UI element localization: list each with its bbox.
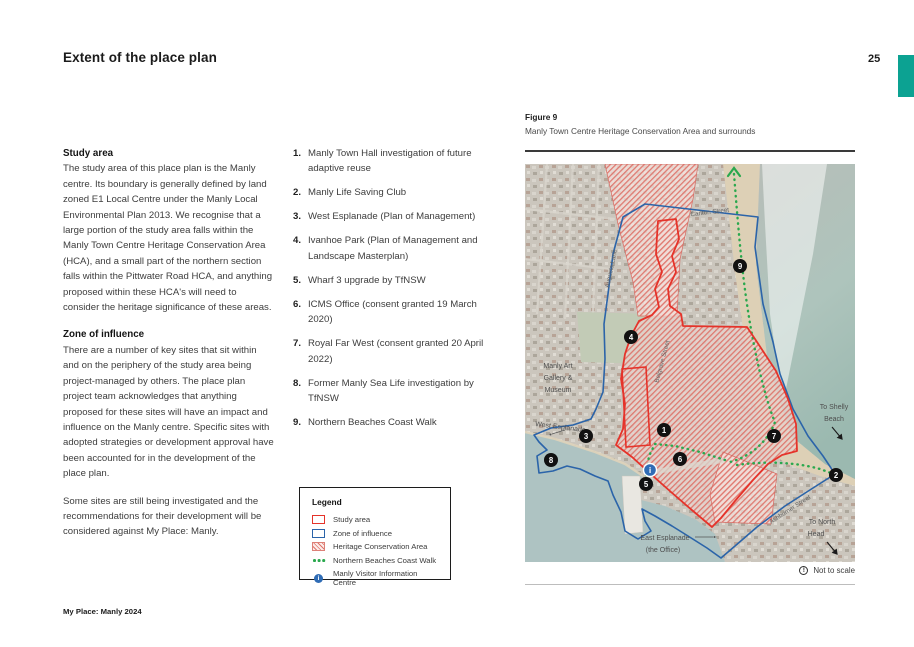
map-figure: Carlton Street Augusta Lane Belgrave Str… bbox=[525, 164, 855, 562]
legend-item-info-centre: i Manly Visitor Information Centre bbox=[312, 569, 442, 587]
zone-of-influence-swatch bbox=[312, 529, 325, 538]
svg-text:3: 3 bbox=[584, 432, 589, 441]
svg-text:i: i bbox=[649, 465, 651, 475]
study-area-swatch bbox=[312, 515, 325, 524]
marker-7: 7 bbox=[767, 429, 781, 443]
key-sites-list: 1.Manly Town Hall investigation of futur… bbox=[293, 146, 493, 439]
marker-8: 8 bbox=[544, 453, 558, 467]
caption-rule bbox=[525, 150, 855, 152]
svg-text:East Esplanade: East Esplanade bbox=[640, 535, 689, 542]
svg-text:(the Office): (the Office) bbox=[646, 547, 681, 554]
svg-text:Museum: Museum bbox=[545, 387, 572, 394]
study-area-body: The study area of this place plan is the… bbox=[63, 161, 274, 315]
list-item: 5.Wharf 3 upgrade by TfNSW bbox=[293, 273, 493, 288]
legend-item-zone-of-influence: Zone of influence bbox=[312, 529, 442, 538]
list-item: 4.Ivanhoe Park (Plan of Management and L… bbox=[293, 233, 493, 264]
manly-map: Carlton Street Augusta Lane Belgrave Str… bbox=[525, 164, 855, 562]
list-item: 2.Manly Life Saving Club bbox=[293, 185, 493, 200]
legend-item-study-area: Study area bbox=[312, 515, 442, 524]
zone-of-influence-para2: Some sites are still being investigated … bbox=[63, 494, 274, 540]
marker-6: 6 bbox=[673, 452, 687, 466]
list-item: 6.ICMS Office (consent granted 19 March … bbox=[293, 297, 493, 328]
visitor-info-icon: i bbox=[644, 464, 657, 477]
marker-3: 3 bbox=[579, 429, 593, 443]
svg-text:2: 2 bbox=[834, 471, 839, 480]
marker-2: 2 bbox=[829, 468, 843, 482]
alert-icon: ! bbox=[799, 566, 808, 575]
figure-label: Figure 9 bbox=[525, 112, 855, 122]
info-icon: i bbox=[312, 574, 325, 583]
coast-walk-dots-icon bbox=[312, 556, 325, 565]
marker-9: 9 bbox=[733, 259, 747, 273]
label-art-gallery: Manly Art Gallery & Museum bbox=[543, 363, 572, 394]
svg-text:4: 4 bbox=[629, 333, 634, 342]
list-item: 8.Former Manly Sea Life investigation by… bbox=[293, 376, 493, 407]
svg-text:1: 1 bbox=[662, 426, 667, 435]
zone-of-influence-para1: There are a number of key sites that sit… bbox=[63, 343, 274, 482]
svg-text:Head: Head bbox=[808, 531, 825, 538]
heritage-hatch-swatch bbox=[312, 542, 325, 551]
list-item: 3.West Esplanade (Plan of Management) bbox=[293, 209, 493, 224]
zone-of-influence-heading: Zone of influence bbox=[63, 327, 274, 342]
left-column: Study area The study area of this place … bbox=[63, 146, 274, 552]
svg-text:Manly Art: Manly Art bbox=[543, 363, 572, 370]
scale-note: ! Not to scale bbox=[525, 566, 855, 575]
footer-text: My Place: Manly 2024 bbox=[63, 607, 142, 616]
marker-5: 5 bbox=[639, 477, 653, 491]
study-area-heading: Study area bbox=[63, 146, 274, 161]
list-item: 1.Manly Town Hall investigation of futur… bbox=[293, 146, 493, 177]
svg-text:Beach: Beach bbox=[824, 416, 844, 423]
list-item: 9.Northern Beaches Coast Walk bbox=[293, 415, 493, 430]
page-title: Extent of the place plan bbox=[63, 50, 217, 65]
legend-item-coast-walk: Northern Beaches Coast Walk bbox=[312, 556, 442, 565]
list-item: 7.Royal Far West (consent granted 20 Apr… bbox=[293, 336, 493, 367]
marker-4: 4 bbox=[624, 330, 638, 344]
svg-text:To Shelly: To Shelly bbox=[820, 404, 849, 411]
svg-text:7: 7 bbox=[772, 432, 776, 441]
document-page: { "page": { "title": "Extent of the plac… bbox=[0, 0, 914, 647]
legend-title: Legend bbox=[312, 497, 442, 507]
svg-text:9: 9 bbox=[738, 262, 743, 271]
map-legend: Legend Study area Zone of influence Heri… bbox=[299, 487, 451, 580]
page-number: 25 bbox=[868, 53, 880, 65]
figure-bottom-rule bbox=[525, 584, 855, 585]
svg-text:8: 8 bbox=[549, 456, 554, 465]
marker-1: 1 bbox=[657, 423, 671, 437]
section-tab bbox=[898, 55, 914, 97]
svg-text:Gallery &: Gallery & bbox=[544, 375, 573, 382]
legend-item-heritage: Heritage Conservation Area bbox=[312, 542, 442, 551]
figure-caption-text: Manly Town Centre Heritage Conservation … bbox=[525, 126, 855, 136]
figure-caption: Figure 9 Manly Town Centre Heritage Cons… bbox=[525, 112, 855, 136]
svg-text:To North: To North bbox=[809, 519, 836, 526]
svg-text:6: 6 bbox=[678, 455, 683, 464]
svg-text:5: 5 bbox=[644, 480, 649, 489]
